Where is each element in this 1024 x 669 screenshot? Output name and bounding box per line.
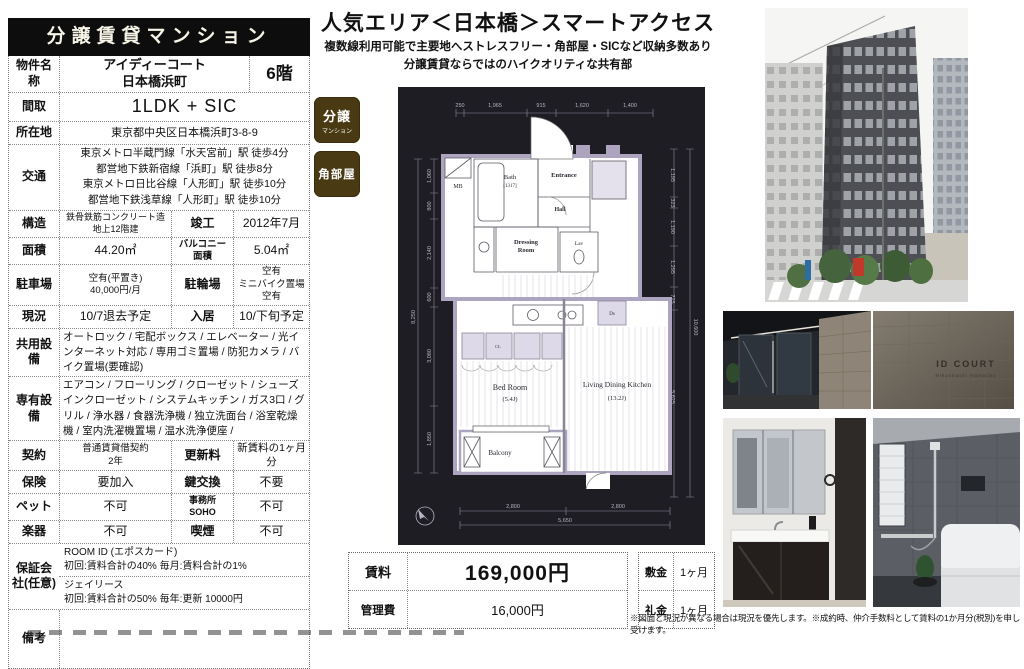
svg-text:1,965: 1,965 bbox=[488, 103, 502, 109]
cell-value: 不可 bbox=[59, 521, 171, 543]
svg-text:Lav: Lav bbox=[575, 241, 584, 247]
svg-text:Entrance: Entrance bbox=[551, 172, 577, 179]
svg-text:323: 323 bbox=[669, 198, 675, 207]
svg-text:1,620: 1,620 bbox=[575, 103, 589, 109]
building-exterior-photo bbox=[765, 8, 968, 302]
svg-text:MB: MB bbox=[453, 184, 462, 190]
badge-kadobeya: 角部屋 bbox=[314, 151, 360, 197]
svg-text:1,060: 1,060 bbox=[427, 169, 433, 183]
row-label: 交通 bbox=[9, 145, 59, 210]
price-row: 賃料169,000円 bbox=[349, 553, 627, 591]
cell-value: 喫煙 bbox=[171, 521, 233, 543]
table-row: 間取1LDK + SIC bbox=[9, 93, 309, 122]
svg-text:Balcony: Balcony bbox=[488, 449, 512, 457]
cell-value bbox=[59, 610, 309, 668]
row-label: 現況 bbox=[9, 306, 59, 328]
cell-value: 普通賃貸借契約 2年 bbox=[59, 441, 171, 470]
svg-text:Bed Room: Bed Room bbox=[493, 383, 528, 392]
cell-value: 5.04㎡ bbox=[233, 238, 309, 265]
subtitle-line2: 分譲賃貸ならではのハイクオリティな共有部 bbox=[316, 57, 720, 75]
table-row: 物件名称アイディーコート 日本橋浜町6階 bbox=[9, 56, 309, 93]
bath-shelf bbox=[881, 534, 933, 538]
cell-value: 事務所 SOHO bbox=[171, 494, 233, 519]
svg-text:(5.4J): (5.4J) bbox=[503, 396, 518, 403]
street-sign bbox=[805, 260, 811, 280]
price-label: 管理費 bbox=[349, 591, 408, 628]
nameplate-svg: ID COURT Nihonbashi Hamacho bbox=[873, 311, 1014, 409]
table-row: 現況10/7退去予定入居10/下旬予定 bbox=[9, 306, 309, 329]
table-row: ペット不可事務所 SOHO不可 bbox=[9, 494, 309, 520]
cell-value: バルコニー 面積 bbox=[171, 238, 233, 265]
cell-value: オートロック / 宅配ボックス / エレベーター / 光インターネット対応 / … bbox=[59, 329, 309, 377]
svg-text:Bath: Bath bbox=[504, 174, 517, 181]
subtitle-line1: 複数線利用可能で主要地へストレスフリー・角部屋・SICなど収納多数あり bbox=[316, 39, 720, 57]
cell-value: 1LDK + SIC bbox=[59, 93, 309, 121]
cell-value: 2012年7月 bbox=[233, 211, 309, 237]
glass-door-right bbox=[777, 333, 811, 397]
svg-text:Room: Room bbox=[518, 247, 535, 254]
table-row: 契約普通賃貸借契約 2年更新料新賃料の1ヶ月分 bbox=[9, 441, 309, 471]
plant bbox=[726, 363, 740, 383]
nameplate-photo: ID COURT Nihonbashi Hamacho bbox=[873, 311, 1014, 409]
svg-text:250: 250 bbox=[455, 103, 464, 109]
row-label: ペット bbox=[9, 494, 59, 519]
deposit-label: 敷金 bbox=[639, 553, 674, 590]
cell-value: 不要 bbox=[233, 471, 309, 493]
cell-value: エアコン / フローリング / クローゼット / シューズインクローゼット / … bbox=[59, 377, 309, 440]
row-label: 保険 bbox=[9, 471, 59, 493]
mirror-reflection2 bbox=[767, 438, 789, 508]
badge-kado-main: 角部屋 bbox=[318, 166, 356, 182]
cell-value: 6階 bbox=[249, 56, 309, 92]
row-label: 契約 bbox=[9, 441, 59, 470]
svg-text:915: 915 bbox=[536, 103, 545, 109]
svg-text:2,800: 2,800 bbox=[506, 504, 520, 510]
table-row: 共用設備オートロック / 宅配ボックス / エレベーター / 光インターネット対… bbox=[9, 329, 309, 378]
bathroom-photo bbox=[873, 418, 1020, 607]
cell-value: 空有(平置き) 40,000円/月 bbox=[59, 265, 171, 304]
clipped-text-strip bbox=[28, 630, 464, 635]
price-row: 管理費16,000円 bbox=[349, 591, 627, 628]
floorplan-svg: 250 1,965 915 1,620 1,400 1,060 800 2,14… bbox=[398, 87, 705, 545]
soap-dispenser bbox=[809, 516, 816, 530]
cell-value: 駐輪場 bbox=[171, 265, 233, 304]
cell-value: 鉄骨鉄筋コンクリート造 地上12階建 bbox=[59, 211, 171, 237]
svg-text:800: 800 bbox=[427, 201, 433, 210]
price-value: 16,000円 bbox=[408, 591, 627, 628]
plant-basket bbox=[913, 577, 937, 587]
svg-text:Living Dining Kitchen: Living Dining Kitchen bbox=[583, 380, 652, 389]
table-row: 所在地東京都中央区日本橋浜町3-8-9 bbox=[9, 122, 309, 145]
cell-value: 要加入 bbox=[59, 471, 171, 493]
floorplan-image: 250 1,965 915 1,620 1,400 1,060 800 2,14… bbox=[398, 87, 705, 545]
svg-text:1,195: 1,195 bbox=[669, 168, 675, 182]
svg-text:3,080: 3,080 bbox=[427, 349, 433, 363]
building-name-sign: ID COURT bbox=[936, 359, 996, 369]
building-name-sub: Nihonbashi Hamacho bbox=[935, 373, 996, 378]
cell-value: 入居 bbox=[171, 306, 233, 328]
table-row: 駐車場空有(平置き) 40,000円/月駐輪場空有 ミニバイク置場空有 bbox=[9, 265, 309, 305]
svg-text:[1317]: [1317] bbox=[503, 184, 517, 189]
price-value: 169,000円 bbox=[408, 553, 627, 590]
svg-text:600: 600 bbox=[427, 292, 433, 301]
cell-value: 44.20㎡ bbox=[59, 238, 171, 265]
badge-bunjo-main: 分譲 bbox=[323, 106, 351, 125]
page-title: 人気エリア＜日本橋＞スマートアクセス bbox=[316, 7, 720, 37]
badge-bunjo-sub: マンション bbox=[322, 126, 352, 135]
table-row: 楽器不可喫煙不可 bbox=[9, 521, 309, 544]
svg-text:Dressing: Dressing bbox=[514, 239, 539, 246]
mirror-reflection bbox=[737, 438, 757, 508]
property-table: 物件名称アイディーコート 日本橋浜町6階間取1LDK + SIC所在地東京都中央… bbox=[8, 56, 310, 669]
building-exterior-svg bbox=[765, 8, 968, 302]
cell-value: アイディーコート 日本橋浜町 bbox=[59, 56, 249, 92]
cell-value: 更新料 bbox=[171, 441, 233, 470]
svg-text:2,800: 2,800 bbox=[611, 504, 625, 510]
disclaimer-note: ※図面と現況が異なる場合は現況を優先します。※成約時、仲介手数料として賃料の1か… bbox=[630, 612, 1022, 636]
row-label: 保証会社(任意) bbox=[9, 544, 59, 609]
row-label: 駐車場 bbox=[9, 265, 59, 304]
table-row: 専有設備エアコン / フローリング / クローゼット / シューズインクローゼッ… bbox=[9, 377, 309, 441]
tile-wall bbox=[819, 311, 871, 409]
row-label: 楽器 bbox=[9, 521, 59, 543]
table-row: 保証会社(任意)ROOM ID (エポスカード) 初回:賃料合計の40% 毎月:… bbox=[9, 544, 309, 610]
vanity-svg bbox=[723, 418, 866, 607]
page-subtitle: 複数線利用可能で主要地へストレスフリー・角部屋・SICなど収納多数あり 分譲賃貸… bbox=[316, 39, 720, 75]
row-label: 構造 bbox=[9, 211, 59, 237]
svg-text:Hall: Hall bbox=[554, 207, 565, 213]
cell-value: 10/7退去予定 bbox=[59, 306, 171, 328]
row-label: 専有設備 bbox=[9, 377, 59, 440]
dark-doorway bbox=[835, 418, 866, 607]
row-label: 間取 bbox=[9, 93, 59, 121]
rent-box: 賃料169,000円管理費16,000円 bbox=[348, 552, 628, 629]
flyer-header: 分譲賃貸マンション bbox=[8, 18, 310, 56]
bathroom-svg bbox=[873, 418, 1020, 607]
cell-value: 10/下旬予定 bbox=[233, 306, 309, 328]
cell-value: ROOM ID (エポスカード) 初回:賃料合計の40% 毎月:賃料合計の1% bbox=[59, 544, 309, 577]
row-label: 所在地 bbox=[9, 122, 59, 144]
svg-text:Ds: Ds bbox=[609, 312, 615, 317]
property-panel: 分譲賃貸マンション 物件名称アイディーコート 日本橋浜町6階間取1LDK + S… bbox=[8, 18, 310, 669]
row-label: 物件名称 bbox=[9, 56, 59, 92]
table-row: 構造鉄骨鉄筋コンクリート造 地上12階建竣工2012年7月 bbox=[9, 211, 309, 238]
entrance-photo bbox=[723, 311, 871, 409]
row-label: 面積 bbox=[9, 238, 59, 265]
cell-value: 不可 bbox=[233, 494, 309, 519]
vanity-floor bbox=[723, 600, 866, 607]
cell-value: ジェイリース 初回:賃料合計の50% 毎年:更新 10000円 bbox=[59, 577, 309, 609]
svg-text:1,190: 1,190 bbox=[669, 220, 675, 234]
shower-head bbox=[930, 442, 940, 450]
deposit-row: 敷金1ヶ月 bbox=[639, 553, 714, 591]
svg-text:(13.2J): (13.2J) bbox=[608, 395, 626, 402]
badge-bunjo-mansion: 分譲 マンション bbox=[314, 97, 360, 143]
cell-value: 竣工 bbox=[171, 211, 233, 237]
entrance-svg bbox=[723, 311, 871, 409]
entrance-floor bbox=[723, 395, 819, 409]
bath-control-panel bbox=[961, 476, 985, 491]
counter bbox=[731, 530, 829, 542]
cell-value: 空有 ミニバイク置場空有 bbox=[233, 265, 309, 304]
price-label: 賃料 bbox=[349, 553, 408, 590]
postbox bbox=[853, 258, 864, 276]
cell-value: 東京都中央区日本橋浜町3-8-9 bbox=[59, 122, 309, 144]
vanity-photo bbox=[723, 418, 866, 607]
cell-value: 鍵交換 bbox=[171, 471, 233, 493]
svg-text:1,400: 1,400 bbox=[623, 103, 637, 109]
svg-text:1,295: 1,295 bbox=[669, 260, 675, 274]
svg-text:1,850: 1,850 bbox=[427, 432, 433, 446]
row-label: 備考 bbox=[9, 610, 59, 668]
cell-value: 不可 bbox=[59, 494, 171, 519]
svg-text:8,250: 8,250 bbox=[411, 310, 417, 324]
cell-value: 新賃料の1ヶ月分 bbox=[233, 441, 309, 470]
svg-text:2,140: 2,140 bbox=[427, 246, 433, 260]
svg-text:CL: CL bbox=[495, 344, 501, 349]
table-row: 備考 bbox=[9, 610, 309, 668]
row-label: 共用設備 bbox=[9, 329, 59, 377]
cell-value: 東京メトロ半蔵門線「水天宮前」駅 徒歩4分 都営地下鉄新宿線「浜町」駅 徒歩8分… bbox=[59, 145, 309, 210]
svg-text:5,650: 5,650 bbox=[558, 518, 572, 524]
table-row: 面積44.20㎡バルコニー 面積5.04㎡ bbox=[9, 238, 309, 266]
bathtub-apron bbox=[941, 568, 1020, 607]
table-row: 保険要加入鍵交換不要 bbox=[9, 471, 309, 494]
cell-value: 不可 bbox=[233, 521, 309, 543]
deposit-value: 1ヶ月 bbox=[674, 553, 714, 590]
table-row: 交通東京メトロ半蔵門線「水天宮前」駅 徒歩4分 都営地下鉄新宿線「浜町」駅 徒歩… bbox=[9, 145, 309, 211]
stacked-cells: ROOM ID (エポスカード) 初回:賃料合計の40% 毎月:賃料合計の1%ジ… bbox=[59, 544, 309, 609]
svg-text:10,600: 10,600 bbox=[692, 319, 698, 336]
